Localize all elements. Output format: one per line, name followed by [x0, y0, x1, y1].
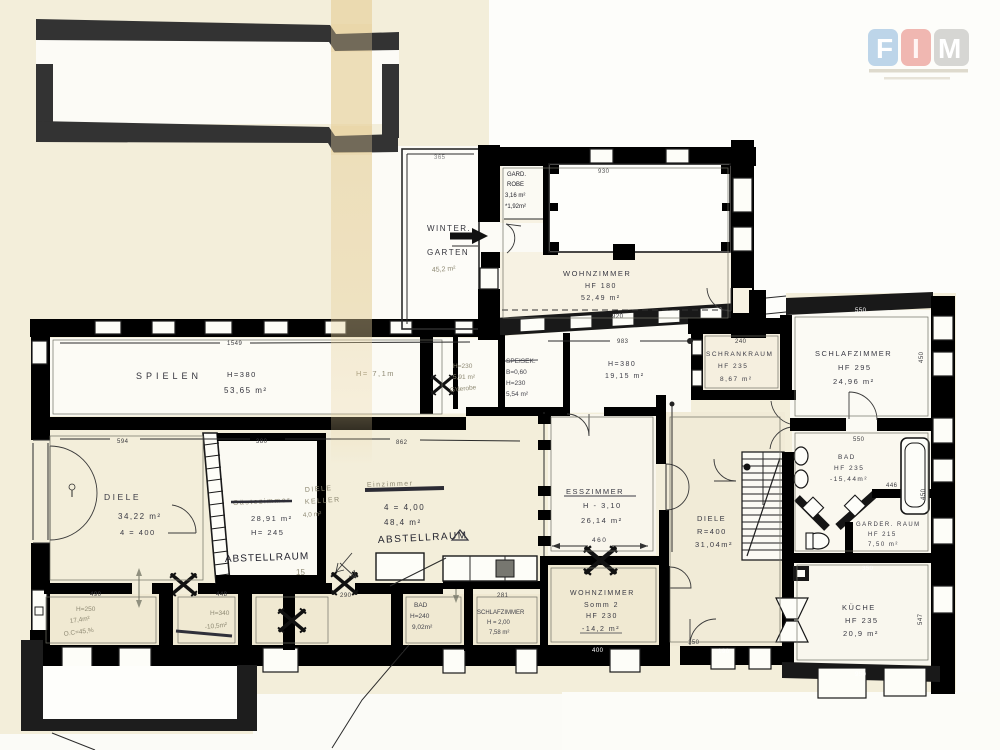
svg-text:448: 448	[216, 592, 228, 598]
svg-text:HF 235: HF 235	[845, 616, 879, 625]
svg-text:HF 235: HF 235	[718, 363, 748, 370]
svg-text:24,96 m²: 24,96 m²	[833, 377, 875, 386]
svg-text:-14,2 m²: -14,2 m²	[582, 626, 620, 633]
svg-text:H=380: H=380	[608, 361, 636, 368]
svg-text:862: 862	[396, 440, 408, 446]
svg-text:H = 2,00: H = 2,00	[487, 620, 511, 626]
svg-text:34,22 m²: 34,22 m²	[118, 512, 162, 521]
svg-text:190: 190	[718, 649, 730, 655]
svg-text:ESSZIMMER: ESSZIMMER	[566, 487, 624, 496]
svg-text:48,4 m²: 48,4 m²	[384, 518, 422, 527]
svg-text:KÜCHE: KÜCHE	[842, 603, 876, 612]
svg-text:400: 400	[592, 648, 604, 654]
svg-text:290: 290	[340, 593, 352, 599]
svg-text:HF 215: HF 215	[868, 532, 897, 538]
svg-text:450: 450	[921, 488, 927, 500]
svg-text:SCHLAFZIMMER: SCHLAFZIMMER	[477, 610, 525, 616]
svg-text:5,91 m²: 5,91 m²	[453, 374, 476, 381]
svg-text:Somm 2: Somm 2	[584, 602, 619, 609]
svg-text:GARD.: GARD.	[507, 172, 526, 178]
svg-text:15: 15	[296, 568, 305, 577]
svg-text:HF 230: HF 230	[586, 613, 618, 620]
svg-text:B=0,60: B=0,60	[506, 369, 527, 376]
svg-text:5,54 m²: 5,54 m²	[506, 391, 529, 398]
svg-text:9,02m²: 9,02m²	[412, 624, 433, 631]
svg-text:F: F	[876, 33, 893, 64]
svg-text:H=250: H=250	[76, 606, 96, 613]
svg-text:930: 930	[598, 169, 610, 175]
svg-text:ROBE: ROBE	[507, 182, 524, 188]
svg-text:31,04m²: 31,04m²	[695, 540, 733, 549]
svg-text:550: 550	[855, 308, 867, 314]
svg-text:920: 920	[612, 314, 624, 320]
svg-text:SPIELEN: SPIELEN	[136, 371, 202, 381]
svg-text:M: M	[938, 33, 961, 64]
svg-text:594: 594	[117, 439, 129, 445]
svg-text:HF 235: HF 235	[834, 465, 864, 472]
svg-text:BAD: BAD	[414, 602, 428, 609]
svg-text:1549: 1549	[227, 341, 243, 347]
svg-text:8,67 m²: 8,67 m²	[720, 376, 753, 383]
svg-text:R=400: R=400	[697, 527, 727, 536]
svg-text:H=230: H=230	[506, 380, 526, 387]
svg-text:983: 983	[617, 339, 629, 345]
svg-text:H=230: H=230	[453, 363, 473, 370]
svg-text:SPEISEK.: SPEISEK.	[506, 358, 536, 365]
svg-text:-15,44m²: -15,44m²	[830, 476, 868, 483]
svg-text:950: 950	[855, 672, 867, 678]
svg-text:4 = 400: 4 = 400	[120, 528, 156, 537]
svg-text:H=240: H=240	[410, 613, 430, 620]
svg-text:7,50 m²: 7,50 m²	[868, 542, 899, 548]
svg-text:H=380: H=380	[227, 370, 257, 379]
svg-text:GARDER. RAUM: GARDER. RAUM	[856, 522, 921, 528]
svg-text:4,0 m²: 4,0 m²	[303, 511, 323, 519]
svg-text:BAD: BAD	[838, 454, 856, 461]
svg-text:HF 180: HF 180	[585, 283, 617, 290]
svg-text:380: 380	[256, 439, 268, 445]
svg-text:28,91 m²: 28,91 m²	[251, 514, 293, 523]
svg-text:*1,92m²: *1,92m²	[505, 204, 526, 210]
svg-text:7,58 m²: 7,58 m²	[489, 630, 509, 636]
svg-text:3,16 m²: 3,16 m²	[505, 193, 525, 199]
svg-text:H - 3,10: H - 3,10	[583, 501, 622, 510]
svg-text:4 = 4,00: 4 = 4,00	[384, 503, 425, 512]
svg-text:I: I	[912, 33, 920, 64]
svg-text:52,49 m²: 52,49 m²	[581, 295, 621, 302]
svg-text:SCHLAFZIMMER: SCHLAFZIMMER	[815, 349, 892, 358]
svg-text:GARTEN: GARTEN	[427, 248, 469, 257]
svg-text:446: 446	[886, 483, 898, 489]
svg-text:DIELE: DIELE	[697, 514, 726, 523]
svg-text:460: 460	[592, 537, 607, 544]
svg-text:20,9 m²: 20,9 m²	[843, 629, 879, 638]
svg-text:240: 240	[735, 339, 747, 345]
svg-text:26,14 m²: 26,14 m²	[581, 516, 623, 525]
svg-text:350: 350	[862, 566, 874, 572]
svg-text:H= 245: H= 245	[251, 528, 284, 537]
svg-text:WINTER.: WINTER.	[427, 224, 471, 233]
svg-text:WOHNZIMMER: WOHNZIMMER	[563, 269, 631, 278]
svg-text:HF 295: HF 295	[838, 363, 872, 372]
svg-text:WOHNZIMMER: WOHNZIMMER	[570, 590, 635, 597]
svg-text:365: 365	[434, 155, 446, 161]
svg-text:19,15 m²: 19,15 m²	[605, 373, 645, 380]
svg-text:550: 550	[853, 437, 865, 443]
svg-text:SCHRANKRAUM: SCHRANKRAUM	[706, 351, 773, 358]
svg-text:547: 547	[918, 613, 924, 625]
svg-text:450: 450	[919, 351, 925, 363]
svg-text:281: 281	[497, 593, 509, 599]
svg-text:DIELE: DIELE	[104, 492, 141, 502]
svg-text:490: 490	[90, 592, 102, 598]
svg-text:53,65 m²: 53,65 m²	[224, 386, 268, 395]
svg-text:H=340: H=340	[210, 610, 230, 617]
